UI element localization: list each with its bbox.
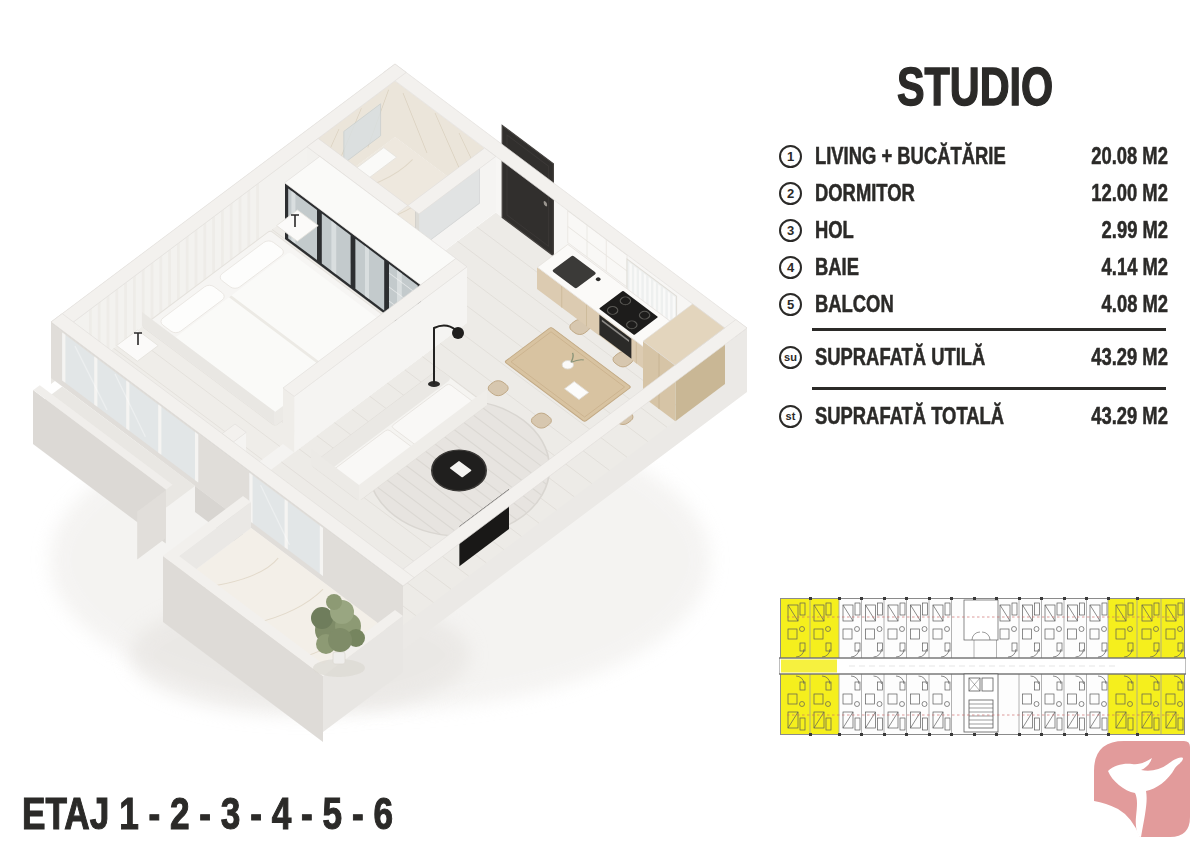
room-label: LIVING + BUCĂTĂRIE	[815, 143, 1072, 170]
room-number-badge: 1	[779, 145, 802, 168]
total-row-utila: su SUPRAFATĂ UTILĂ 43.29 M2	[779, 340, 1168, 374]
room-area: 20.08 M2	[1072, 143, 1168, 170]
total-area: 43.29 M2	[1072, 344, 1168, 371]
legend-row-dormitor: 2 DORMITOR 12.00 M2	[779, 176, 1168, 210]
floor-plan-3d	[0, 0, 770, 848]
total-area: 43.29 M2	[1072, 403, 1168, 430]
room-label: HOL	[815, 217, 1085, 244]
legend-row-baie: 4 BAIE 4.14 M2	[779, 250, 1168, 284]
divider	[812, 387, 1166, 390]
building-level-plan	[779, 597, 1186, 736]
room-label: BALCON	[815, 291, 1085, 318]
room-number-badge: 5	[779, 293, 802, 316]
total-label: SUPRAFATĂ TOTALĂ	[815, 403, 1072, 430]
su-badge: su	[779, 346, 802, 369]
legend-row-living: 1 LIVING + BUCĂTĂRIE 20.08 M2	[779, 139, 1168, 173]
page-title: STUDIO	[780, 56, 1170, 117]
dove-logo-icon	[1094, 741, 1190, 837]
room-area: 12.00 M2	[1072, 180, 1168, 207]
room-number-badge: 3	[779, 219, 802, 242]
legend-row-balcon: 5 BALCON 4.08 M2	[779, 287, 1168, 321]
total-row-totala: st SUPRAFATĂ TOTALĂ 43.29 M2	[779, 399, 1168, 433]
st-badge: st	[779, 405, 802, 428]
room-number-badge: 2	[779, 182, 802, 205]
room-area: 4.08 M2	[1085, 291, 1168, 318]
corridor	[779, 658, 1186, 674]
room-label: DORMITOR	[815, 180, 1072, 207]
legend-row-hol: 3 HOL 2.99 M2	[779, 213, 1168, 247]
total-label: SUPRAFATĂ UTILĂ	[815, 344, 1072, 371]
wall-doorjamb	[283, 388, 294, 452]
room-number-badge: 4	[779, 256, 802, 279]
divider	[812, 328, 1166, 331]
room-label: BAIE	[815, 254, 1085, 281]
floors-label: ETAJ 1 - 2 - 3 - 4 - 5 - 6	[22, 789, 486, 839]
room-area: 2.99 M2	[1085, 217, 1168, 244]
room-area: 4.14 M2	[1085, 254, 1168, 281]
